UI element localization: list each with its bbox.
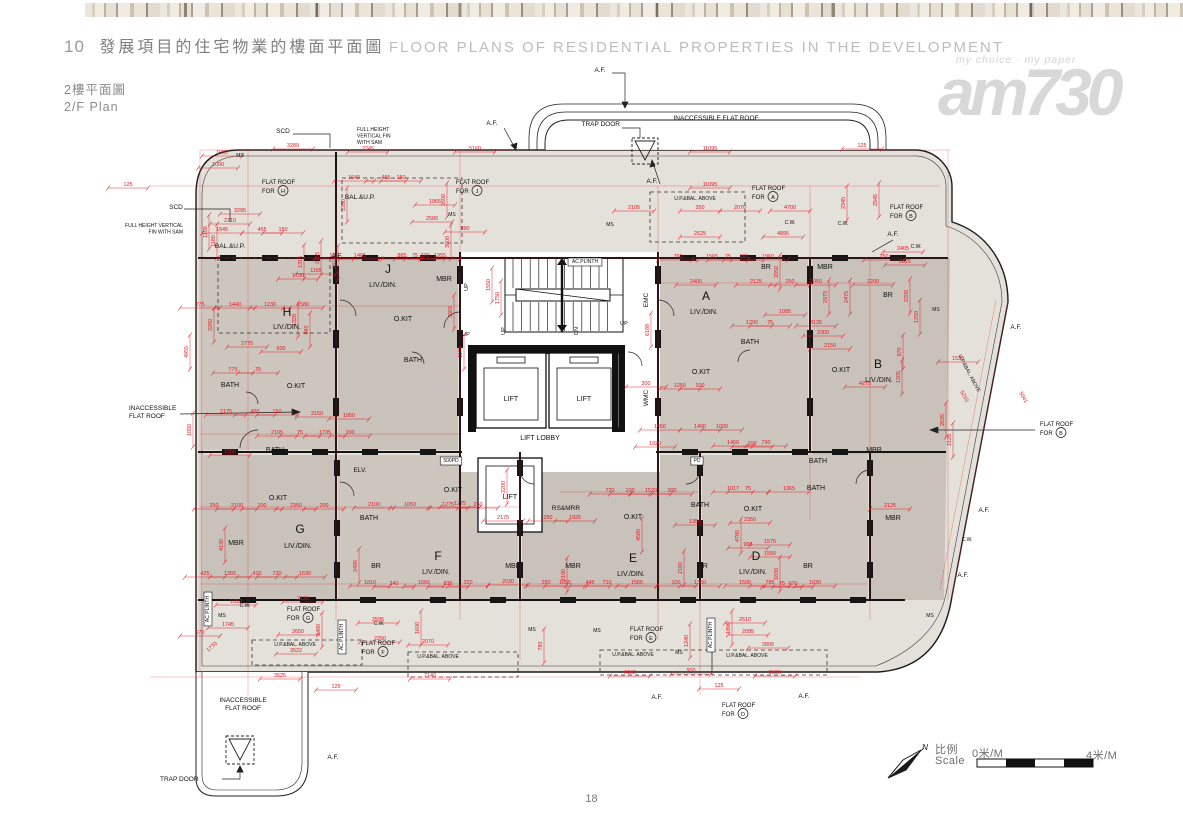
svg-text:LIFT LOBBY: LIFT LOBBY <box>520 435 560 442</box>
svg-text:A.F.: A.F. <box>957 572 968 579</box>
svg-text:1450: 1450 <box>654 424 666 430</box>
svg-text:1275: 1275 <box>454 501 466 507</box>
svg-text:1565: 1565 <box>631 580 643 586</box>
svg-text:775: 775 <box>229 367 238 373</box>
svg-text:C.W.: C.W. <box>838 221 849 227</box>
svg-text:2200: 2200 <box>904 290 910 302</box>
svg-text:125: 125 <box>124 182 133 188</box>
svg-text:3135: 3135 <box>810 320 822 326</box>
svg-text:BATH: BATH <box>360 515 378 522</box>
svg-text:FOR: FOR <box>752 195 765 201</box>
svg-text:MS: MS <box>218 613 226 619</box>
svg-text:100: 100 <box>258 503 267 509</box>
svg-text:LIV./DIN.: LIV./DIN. <box>369 282 397 289</box>
svg-text:A.F.: A.F. <box>651 694 662 701</box>
svg-text:1175: 1175 <box>458 346 464 358</box>
svg-text:2125: 2125 <box>750 279 762 285</box>
svg-text:2245: 2245 <box>362 146 374 152</box>
svg-text:1000: 1000 <box>216 150 228 156</box>
svg-text:2280: 2280 <box>208 319 214 331</box>
svg-text:D: D <box>752 549 761 563</box>
svg-text:2345: 2345 <box>841 197 847 209</box>
svg-text:U.P.&BAL. ABOVE: U.P.&BAL. ABOVE <box>274 642 316 648</box>
svg-text:INACCESSIBLEFLAT ROOF: INACCESSIBLEFLAT ROOF <box>219 697 267 712</box>
svg-text:RS&MRR: RS&MRR <box>552 505 580 512</box>
svg-text:C.W.: C.W. <box>785 220 796 226</box>
svg-text:500PD: 500PD <box>443 458 459 464</box>
svg-text:2600: 2600 <box>441 194 447 206</box>
svg-text:2350: 2350 <box>290 503 302 509</box>
svg-text:270: 270 <box>421 253 430 259</box>
svg-text:3065: 3065 <box>448 306 454 318</box>
svg-text:C.W.: C.W. <box>240 603 251 609</box>
svg-text:FOR: FOR <box>1040 431 1053 437</box>
svg-text:2975: 2975 <box>823 291 829 303</box>
svg-text:O.KIT: O.KIT <box>394 316 413 323</box>
svg-text:A.F.: A.F. <box>327 754 338 761</box>
svg-text:AC PLINTH: AC PLINTH <box>205 596 211 623</box>
svg-text:1810: 1810 <box>364 580 376 586</box>
svg-text:3525: 3525 <box>274 673 286 679</box>
scale-four-label: 4米/M <box>1086 747 1117 763</box>
svg-text:FULL HEIGHT VERTICALFIN WITH S: FULL HEIGHT VERTICALFIN WITH SAM <box>125 223 183 236</box>
svg-text:790: 790 <box>762 440 771 446</box>
svg-text:860: 860 <box>304 326 310 335</box>
svg-text:INACCESSIBLE FLAT ROOF: INACCESSIBLE FLAT ROOF <box>673 115 758 122</box>
svg-text:2105: 2105 <box>271 430 283 436</box>
svg-text:250: 250 <box>544 515 553 521</box>
svg-text:760: 760 <box>674 254 683 260</box>
svg-text:3289: 3289 <box>287 143 299 149</box>
svg-text:75: 75 <box>412 253 418 259</box>
svg-text:1550: 1550 <box>224 449 236 455</box>
svg-text:U.P.&BAL. ABOVE: U.P.&BAL. ABOVE <box>674 196 716 202</box>
north-arrow-icon <box>888 748 924 778</box>
svg-text:BAL.&U.P.: BAL.&U.P. <box>215 243 245 250</box>
svg-text:3150: 3150 <box>311 411 323 417</box>
svg-text:2200: 2200 <box>501 481 507 493</box>
svg-text:AC PLINTH: AC PLINTH <box>708 622 714 649</box>
svg-text:2610: 2610 <box>739 617 751 623</box>
svg-text:1735: 1735 <box>319 430 331 436</box>
svg-text:B: B <box>1059 431 1063 437</box>
svg-text:1365: 1365 <box>783 486 795 492</box>
svg-text:N: N <box>922 743 928 752</box>
svg-text:TRAP DOOR: TRAP DOOR <box>581 121 620 128</box>
svg-text:2070: 2070 <box>734 205 746 211</box>
svg-text:U.P.&BAL. ABOVE: U.P.&BAL. ABOVE <box>417 654 459 660</box>
svg-text:2405: 2405 <box>897 246 909 252</box>
svg-text:965: 965 <box>744 542 753 548</box>
svg-text:165: 165 <box>740 254 749 260</box>
svg-text:1050: 1050 <box>187 424 193 436</box>
svg-text:970: 970 <box>897 348 903 357</box>
svg-text:INACCESSIBLEFLAT ROOF: INACCESSIBLEFLAT ROOF <box>129 405 177 420</box>
svg-text:D: D <box>741 712 745 718</box>
svg-text:B: B <box>909 214 913 220</box>
svg-text:2580: 2580 <box>426 216 438 222</box>
scale-label-english: Scale <box>935 755 965 767</box>
svg-text:BATH: BATH <box>691 502 709 509</box>
svg-text:A.F.: A.F. <box>887 231 898 238</box>
svg-text:1085: 1085 <box>779 309 791 315</box>
svg-text:1505: 1505 <box>896 371 902 383</box>
svg-text:SCD: SCD <box>169 204 183 211</box>
svg-text:FOR: FOR <box>287 616 300 622</box>
svg-text:FOR: FOR <box>262 189 275 195</box>
svg-text:11095: 11095 <box>703 182 718 188</box>
svg-text:O.KIT: O.KIT <box>269 495 288 502</box>
svg-text:2135: 2135 <box>297 596 309 602</box>
svg-text:A.F.: A.F. <box>798 693 809 700</box>
svg-text:LIFT: LIFT <box>577 396 592 403</box>
svg-text:1050: 1050 <box>343 413 355 419</box>
svg-text:1960: 1960 <box>762 254 774 260</box>
svg-text:2150: 2150 <box>824 343 836 349</box>
svg-text:7140: 7140 <box>424 673 436 679</box>
svg-text:125: 125 <box>332 684 341 690</box>
svg-text:FOR: FOR <box>630 636 643 642</box>
svg-text:O.KIT: O.KIT <box>744 506 763 513</box>
svg-text:75: 75 <box>255 367 261 373</box>
svg-text:455: 455 <box>258 227 267 233</box>
svg-text:2350: 2350 <box>744 517 756 523</box>
svg-text:1745: 1745 <box>222 622 234 628</box>
svg-text:BR: BR <box>761 264 771 271</box>
svg-text:A.F.: A.F. <box>646 178 657 185</box>
svg-text:MS: MS <box>675 650 683 656</box>
svg-text:100: 100 <box>626 488 635 494</box>
svg-text:BATH: BATH <box>221 382 239 389</box>
svg-text:1100: 1100 <box>203 226 209 238</box>
svg-text:MBR: MBR <box>817 264 833 271</box>
svg-text:300: 300 <box>668 488 677 494</box>
svg-text:G: G <box>295 522 304 536</box>
svg-text:1630: 1630 <box>809 580 821 586</box>
svg-text:UP: UP <box>464 283 470 291</box>
svg-text:MS: MS <box>926 613 934 619</box>
svg-text:2050: 2050 <box>810 279 822 285</box>
svg-text:LIV./DIN.: LIV./DIN. <box>690 309 718 316</box>
svg-text:1565: 1565 <box>706 254 718 260</box>
svg-text:150: 150 <box>397 175 406 181</box>
svg-text:1590: 1590 <box>739 580 751 586</box>
svg-text:BR: BR <box>803 563 813 570</box>
svg-text:1565: 1565 <box>418 580 430 586</box>
svg-text:BR: BR <box>698 563 708 570</box>
svg-text:1550: 1550 <box>764 551 776 557</box>
svg-text:410: 410 <box>253 571 262 577</box>
svg-text:2400: 2400 <box>690 279 702 285</box>
svg-text:ELV.: ELV. <box>353 467 366 474</box>
page-number: 18 <box>0 793 1183 805</box>
svg-text:900: 900 <box>687 668 696 674</box>
svg-text:2100: 2100 <box>231 503 243 509</box>
svg-text:275: 275 <box>196 302 205 308</box>
svg-text:2100: 2100 <box>368 502 380 508</box>
svg-text:1050: 1050 <box>404 502 416 508</box>
svg-text:2100: 2100 <box>678 562 684 574</box>
svg-text:1730: 1730 <box>292 273 304 279</box>
svg-text:1250: 1250 <box>914 311 920 323</box>
svg-text:4580: 4580 <box>636 529 642 541</box>
svg-text:2650: 2650 <box>292 629 304 635</box>
svg-text:5160: 5160 <box>469 146 481 152</box>
svg-text:J: J <box>476 189 479 195</box>
svg-text:BR: BR <box>371 563 381 570</box>
svg-text:SCD: SCD <box>276 128 290 135</box>
svg-text:2805: 2805 <box>762 642 774 648</box>
svg-text:E: E <box>649 636 653 642</box>
svg-text:2625: 2625 <box>694 231 706 237</box>
svg-text:MS: MS <box>236 153 244 159</box>
svg-text:2200: 2200 <box>867 279 879 285</box>
svg-text:250: 250 <box>210 503 219 509</box>
svg-text:300: 300 <box>642 381 651 387</box>
svg-text:U.P.&BAL. ABOVE: U.P.&BAL. ABOVE <box>726 653 768 659</box>
svg-text:1920: 1920 <box>649 441 661 447</box>
svg-text:150: 150 <box>279 227 288 233</box>
svg-text:2495: 2495 <box>353 560 359 572</box>
svg-text:A.F.: A.F. <box>594 67 605 74</box>
svg-text:1830: 1830 <box>774 568 780 580</box>
svg-text:FOR: FOR <box>722 712 735 718</box>
svg-text:MBR: MBR <box>505 563 521 570</box>
svg-text:2325: 2325 <box>899 259 911 265</box>
svg-text:FLAT ROOF: FLAT ROOF <box>362 641 395 647</box>
svg-text:75: 75 <box>767 320 773 326</box>
svg-text:2775: 2775 <box>241 341 253 347</box>
svg-text:FOR: FOR <box>362 650 375 656</box>
svg-text:2050: 2050 <box>774 266 780 278</box>
svg-text:200: 200 <box>320 503 329 509</box>
svg-text:FLAT ROOF: FLAT ROOF <box>630 627 663 633</box>
svg-text:1890: 1890 <box>726 622 732 634</box>
svg-text:LIV./DIN.: LIV./DIN. <box>865 377 893 384</box>
svg-text:BAL.&U.P.: BAL.&U.P. <box>345 194 375 201</box>
svg-text:LIV./DIN.: LIV./DIN. <box>617 571 645 578</box>
svg-text:2480: 2480 <box>316 624 322 636</box>
svg-text:BATH: BATH <box>809 458 827 465</box>
svg-text:A.F.: A.F. <box>486 120 497 127</box>
svg-text:O.KIT: O.KIT <box>444 487 463 494</box>
svg-text:MBR: MBR <box>228 540 244 547</box>
svg-text:LIFT: LIFT <box>504 396 519 403</box>
svg-text:2125: 2125 <box>947 434 953 446</box>
svg-text:AC PLINTH: AC PLINTH <box>339 624 345 651</box>
svg-text:3500: 3500 <box>445 236 451 248</box>
svg-text:F: F <box>434 549 441 563</box>
svg-text:2300: 2300 <box>817 330 829 336</box>
svg-text:100: 100 <box>346 430 355 436</box>
svg-text:3522: 3522 <box>290 648 302 654</box>
svg-text:720: 720 <box>273 571 282 577</box>
svg-text:MBR: MBR <box>885 515 901 522</box>
svg-text:1955: 1955 <box>434 253 446 259</box>
svg-text:FLAT ROOF: FLAT ROOF <box>722 703 755 709</box>
svg-text:MS: MS <box>606 222 614 228</box>
svg-text:2545: 2545 <box>873 194 879 206</box>
svg-text:DN: DN <box>574 327 580 335</box>
svg-text:445: 445 <box>586 580 595 586</box>
svg-text:1465: 1465 <box>354 253 366 259</box>
svg-text:75: 75 <box>297 430 303 436</box>
svg-text:425: 425 <box>201 571 210 577</box>
svg-text:2635: 2635 <box>940 414 946 426</box>
svg-text:1520: 1520 <box>645 488 657 494</box>
svg-text:4895: 4895 <box>777 231 789 237</box>
svg-text:MBR: MBR <box>436 276 452 283</box>
svg-text:O.KIT: O.KIT <box>624 514 643 521</box>
svg-text:1230: 1230 <box>264 302 276 308</box>
svg-text:FOR: FOR <box>456 189 469 195</box>
svg-text:BATH: BATH <box>404 357 422 364</box>
svg-text:1690: 1690 <box>415 622 421 634</box>
svg-text:4955: 4955 <box>184 346 190 358</box>
svg-text:6188: 6188 <box>645 324 651 336</box>
svg-text:LIFT: LIFT <box>503 494 518 501</box>
svg-text:1440: 1440 <box>229 302 241 308</box>
svg-text:350: 350 <box>696 205 705 211</box>
svg-text:FLAT ROOF: FLAT ROOF <box>752 186 785 192</box>
svg-text:LIV./DIN.: LIV./DIN. <box>739 569 767 576</box>
svg-text:1350: 1350 <box>689 519 701 525</box>
svg-text:320: 320 <box>464 580 473 586</box>
svg-text:O.KIT: O.KIT <box>287 383 306 390</box>
svg-text:450: 450 <box>251 409 260 415</box>
svg-text:LIV./DIN.: LIV./DIN. <box>273 324 301 331</box>
svg-text:75: 75 <box>725 254 731 260</box>
svg-text:MBR: MBR <box>565 563 581 570</box>
svg-text:1460: 1460 <box>727 440 739 446</box>
svg-text:2030: 2030 <box>502 579 514 585</box>
svg-text:1000: 1000 <box>716 424 728 430</box>
svg-text:G: G <box>306 616 310 622</box>
svg-text:LIV./DIN.: LIV./DIN. <box>284 543 312 550</box>
svg-text:MS: MS <box>448 212 456 218</box>
svg-text:TRAP DOOR: TRAP DOOR <box>160 776 199 783</box>
svg-text:O.KIT: O.KIT <box>832 367 851 374</box>
svg-text:2800: 2800 <box>769 670 781 676</box>
svg-text:AC PLINTH: AC PLINTH <box>572 259 599 265</box>
svg-text:250: 250 <box>786 279 795 285</box>
svg-text:A.F.: A.F. <box>978 507 989 514</box>
svg-text:100: 100 <box>672 580 681 586</box>
svg-text:O.KIT: O.KIT <box>692 369 711 376</box>
svg-text:FLAT ROOF: FLAT ROOF <box>287 607 320 613</box>
svg-text:455: 455 <box>382 175 391 181</box>
svg-text:100: 100 <box>696 383 705 389</box>
svg-text:WMC: WMC <box>643 390 650 407</box>
svg-text:FLAT ROOF: FLAT ROOF <box>1040 422 1073 428</box>
svg-text:4780: 4780 <box>735 530 741 542</box>
svg-text:1550: 1550 <box>486 279 492 291</box>
svg-text:MS: MS <box>932 307 940 313</box>
svg-text:BATH: BATH <box>807 485 825 492</box>
svg-text:MS: MS <box>528 627 536 633</box>
svg-text:990: 990 <box>461 226 470 232</box>
svg-text:C.W.: C.W. <box>911 244 922 250</box>
svg-text:1400: 1400 <box>694 424 706 430</box>
svg-text:1645: 1645 <box>216 227 228 233</box>
svg-text:885: 885 <box>398 253 407 259</box>
svg-text:75: 75 <box>745 486 751 492</box>
svg-text:C.W.: C.W. <box>374 621 385 627</box>
svg-text:1000: 1000 <box>212 162 224 168</box>
svg-text:E: E <box>629 551 637 565</box>
svg-text:1630: 1630 <box>299 571 311 577</box>
svg-text:MS: MS <box>593 628 601 634</box>
svg-text:1965: 1965 <box>429 199 441 205</box>
svg-text:2175: 2175 <box>220 409 232 415</box>
svg-text:600: 600 <box>277 346 286 352</box>
svg-text:A: A <box>702 289 710 303</box>
svg-text:FLAT ROOF: FLAT ROOF <box>262 180 295 186</box>
svg-text:125: 125 <box>858 143 867 149</box>
svg-text:150: 150 <box>273 409 282 415</box>
stair-core <box>505 258 623 332</box>
svg-text:1580: 1580 <box>297 302 309 308</box>
svg-text:U.P.&BAL. ABOVE: U.P.&BAL. ABOVE <box>612 652 654 658</box>
svg-text:2190: 2190 <box>561 569 567 581</box>
svg-text:J: J <box>385 262 391 276</box>
svg-text:710: 710 <box>603 580 612 586</box>
svg-text:MBR: MBR <box>866 447 882 454</box>
svg-text:2175: 2175 <box>497 515 509 521</box>
brochure-page: { "page":{"section_no":"10", "title_zh":… <box>0 0 1183 829</box>
svg-text:A: A <box>771 195 775 201</box>
svg-text:1640: 1640 <box>348 175 360 181</box>
svg-text:BATH: BATH <box>741 339 759 346</box>
svg-text:2125: 2125 <box>884 503 896 509</box>
svg-text:2155: 2155 <box>315 252 321 264</box>
svg-text:570: 570 <box>196 630 205 636</box>
svg-text:A.F.: A.F. <box>1010 324 1021 331</box>
svg-text:FULL HEIGHTVERTICAL FINWITH SA: FULL HEIGHTVERTICAL FINWITH SAM <box>357 127 391 146</box>
svg-text:B: B <box>874 357 882 371</box>
floor-plan-svg: 3289224551601109512512511095100010003295… <box>0 0 1183 829</box>
scale-zero-label: 0米/M <box>972 745 1003 761</box>
svg-text:C.W.: C.W. <box>962 537 973 543</box>
svg-text:240: 240 <box>390 581 399 587</box>
svg-text:1265: 1265 <box>224 571 236 577</box>
svg-text:4700: 4700 <box>784 205 796 211</box>
svg-text:1290: 1290 <box>746 320 758 326</box>
svg-text:1750: 1750 <box>495 292 501 304</box>
svg-text:5041: 5041 <box>1017 391 1028 404</box>
svg-text:3295: 3295 <box>234 208 246 214</box>
svg-text:2105: 2105 <box>628 205 640 211</box>
svg-text:4130: 4130 <box>219 539 225 551</box>
svg-text:1250: 1250 <box>674 383 686 389</box>
svg-text:1925: 1925 <box>569 515 581 521</box>
svg-text:A.F.: A.F. <box>331 253 342 260</box>
svg-text:H: H <box>283 305 292 319</box>
svg-text:1240: 1240 <box>684 635 690 647</box>
svg-text:6162: 6162 <box>624 670 636 676</box>
svg-text:BATH: BATH <box>266 447 284 454</box>
svg-text:250: 250 <box>880 254 889 260</box>
svg-text:2475: 2475 <box>844 291 850 303</box>
svg-text:EMC: EMC <box>643 292 650 307</box>
svg-text:1350: 1350 <box>694 580 706 586</box>
svg-text:FLAT ROOF: FLAT ROOF <box>890 205 923 211</box>
svg-text:1165: 1165 <box>310 268 322 274</box>
svg-text:UP: UP <box>462 332 470 338</box>
svg-text:FOR: FOR <box>890 214 903 220</box>
svg-text:2070: 2070 <box>422 639 434 645</box>
svg-text:LIV./DIN.: LIV./DIN. <box>422 569 450 576</box>
